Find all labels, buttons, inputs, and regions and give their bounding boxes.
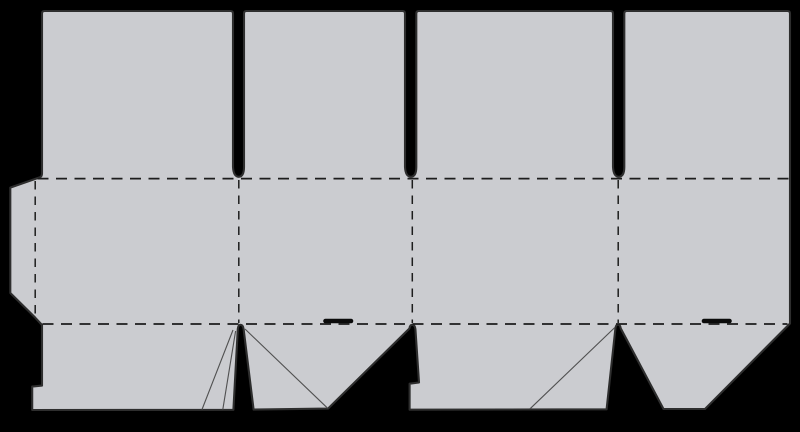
dieline-viewport: [0, 0, 800, 432]
dieline-canvas: [0, 0, 800, 432]
dieline-board-outline: [10, 11, 790, 410]
